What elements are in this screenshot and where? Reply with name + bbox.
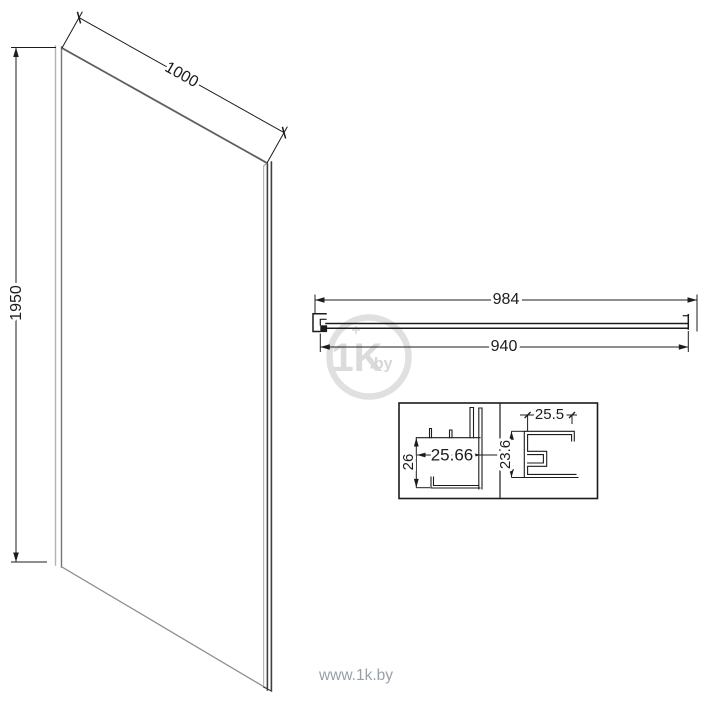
drawing-canvas: 1K .by 1950 1000 xyxy=(0,0,712,703)
wall-profile-depth-value: 26 xyxy=(400,454,417,471)
bar-glass-width-value: 940 xyxy=(491,338,518,355)
dimension-panel-height: 1950 xyxy=(8,48,56,563)
site-url-text: www.1k.by xyxy=(318,667,393,684)
arrowhead-left-icon xyxy=(320,344,330,350)
glass-profile-width-value: 25.5 xyxy=(535,406,564,423)
panel-width-value: 1000 xyxy=(162,59,201,91)
watermark-logo-tld: .by xyxy=(369,356,392,373)
arrowhead-left-icon xyxy=(315,297,325,303)
dimension-panel-width: 1000 xyxy=(62,12,287,163)
wall-clamp-block xyxy=(320,325,327,332)
technical-drawing-page: 1K .by 1950 1000 xyxy=(0,0,712,703)
glass-profile-depth-value: 23.6 xyxy=(497,440,514,469)
dimension-bar-outer: 984 xyxy=(315,291,697,332)
wall-profile-width-value: 25.66 xyxy=(431,446,474,465)
profile-detail-box: 26 25.66 25.5 xyxy=(399,403,598,499)
panel-height-value: 1950 xyxy=(8,285,25,321)
bar-outer-width-value: 984 xyxy=(493,291,520,308)
arrowhead-right-icon xyxy=(679,344,689,350)
oblique-tick-icon xyxy=(282,127,285,139)
panel-bottom-edge xyxy=(62,567,266,688)
site-watermark-logo: 1K .by xyxy=(330,318,409,397)
arrowhead-up-icon xyxy=(13,48,19,58)
oblique-tick-icon xyxy=(77,12,80,24)
arrowhead-right-icon xyxy=(688,297,698,303)
glass-panel xyxy=(56,46,272,691)
arrowhead-down-icon xyxy=(13,553,19,563)
